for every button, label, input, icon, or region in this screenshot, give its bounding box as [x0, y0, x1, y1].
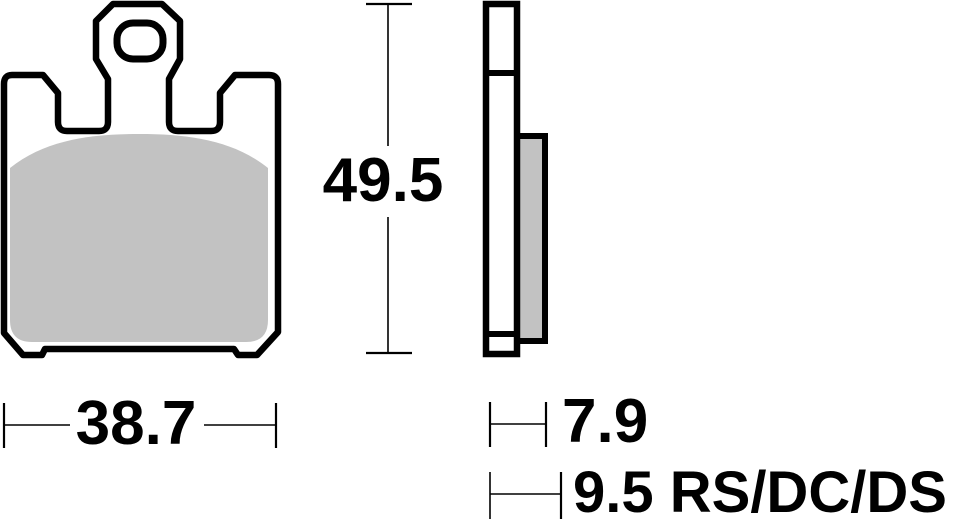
brake-pad-technical-drawing: 49.5 38.7 7.9 9.5 RS/DC/DS [0, 0, 960, 519]
thickness-alt-dimension-label: 9.5 RS/DC/DS [573, 464, 947, 519]
friction-material-front [10, 134, 268, 342]
friction-material-side [517, 136, 545, 341]
height-dimension-label: 49.5 [323, 150, 444, 212]
width-dimension-label: 38.7 [76, 393, 197, 455]
mounting-hole [117, 23, 163, 59]
front-view [4, 4, 278, 355]
thickness-dimension-label: 7.9 [562, 391, 648, 453]
thickness-dimension [490, 402, 546, 447]
backplate-side [486, 4, 517, 354]
thickness-alt-dimension [490, 472, 561, 519]
side-view [483, 4, 545, 354]
